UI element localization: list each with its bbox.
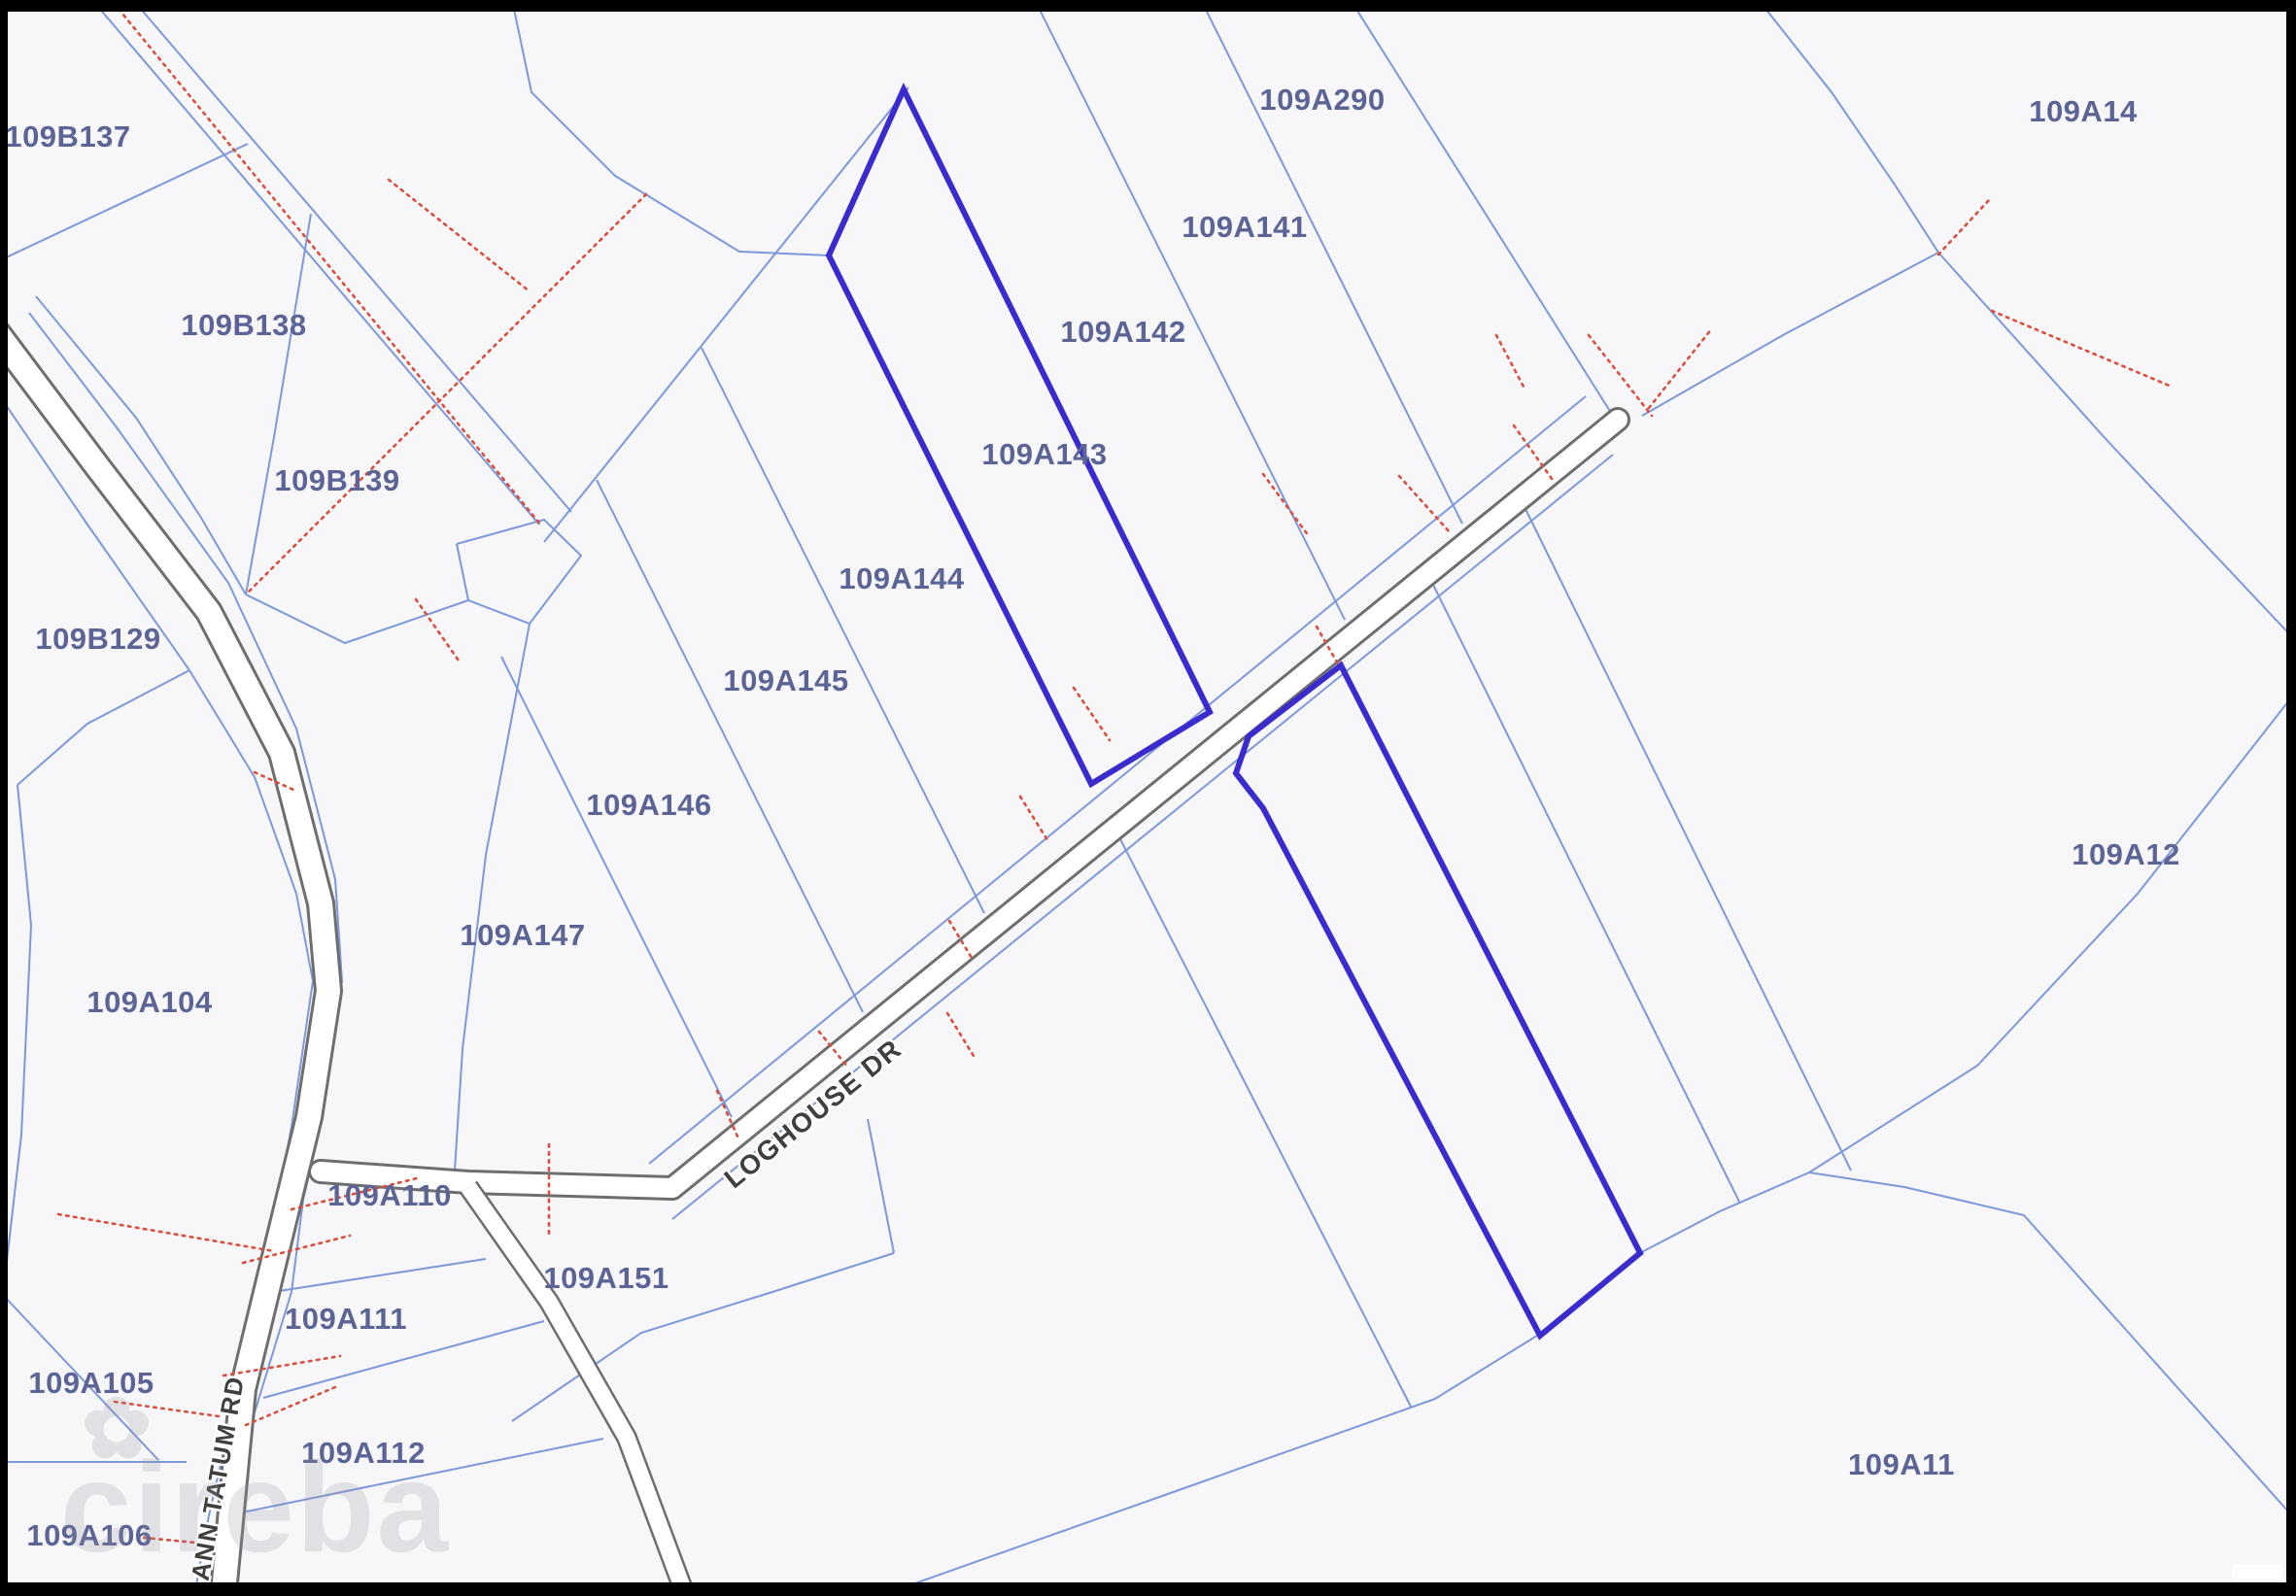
survey-dash-line [115,1402,219,1416]
parcel-boundary-line [1119,837,1411,1407]
survey-dash-line [1589,335,1652,416]
map-attribution-box [2232,1565,2282,1580]
parcel-label-109A151: 109A151 [543,1261,668,1295]
parcel-label-109A104: 109A104 [86,985,213,1019]
parcel-boundary-line [512,12,829,255]
parcel-label-109B137: 109B137 [8,119,131,153]
survey-dash-line [246,1387,335,1425]
parcel-boundary-line [455,624,530,1171]
parcel-boundary-line [8,144,248,260]
survey-dash-line [246,194,646,594]
survey-dash-line [1992,311,2172,387]
parcel-boundary-line [1642,253,1938,416]
parcel-boundary-line [457,520,581,624]
parcel-boundary-line [1525,509,1851,1171]
parcel-map-svg[interactable]: 109B137109B138109B139109B129109A290109A1… [8,12,2286,1582]
branch-road-surface[interactable] [468,1187,692,1582]
parcel-boundary-line [1809,692,2286,1172]
survey-dash-line [1020,797,1049,843]
survey-dash-line [1649,328,1712,408]
parcel-boundary-line [8,785,31,1295]
parcel-label-109A12: 109A12 [2072,837,2180,871]
survey-dash-line [389,180,530,291]
parcel-label-109A146: 109A146 [586,788,711,822]
parcel-label-109A147: 109A147 [460,918,585,952]
parcel-label-109B139: 109B139 [274,463,399,497]
parcel-label-109A144: 109A144 [839,561,965,595]
parcel-boundary-line [501,657,732,1117]
survey-dash-line [114,12,542,526]
parcel-label-109A141: 109A141 [1182,210,1307,244]
parcel-label-109B129: 109B129 [35,622,160,656]
parcel-boundary-line [868,1119,894,1253]
survey-dash-line [1074,688,1110,740]
map-window: 109B137109B138109B139109B129109A290109A1… [0,0,2296,1596]
parcel-label-109B138: 109B138 [181,308,306,342]
parcel-boundary-line [1759,12,1938,253]
parcel-boundary-line [544,87,908,542]
parcel-label-109A143: 109A143 [981,437,1107,471]
parcel-boundary-line [92,12,539,525]
survey-dash-line [1938,200,1989,255]
survey-dash-line [1496,335,1524,387]
survey-dash-line [1263,474,1309,536]
parcel-label-109A142: 109A142 [1060,315,1185,349]
survey-dash-line [58,1214,274,1251]
parcel-boundary-line [246,214,311,594]
parcel-label-109A106: 109A106 [26,1518,152,1552]
survey-dash-line [947,1013,974,1056]
parcel-label-109A11: 109A11 [1848,1447,1955,1481]
parcel-label-109A110: 109A110 [327,1178,452,1212]
parcel-label-109A290: 109A290 [1259,83,1385,117]
parcel-label-109A14: 109A14 [2029,94,2138,128]
parcel-label-109A112: 109A112 [301,1436,426,1470]
parcel-label-109A105: 109A105 [28,1366,154,1400]
parcel-boundary-line [1433,585,1739,1202]
parcel-boundary-line [246,594,468,643]
parcel-boundary-line [597,480,863,1012]
highlighted-parcel-south[interactable] [1236,665,1640,1336]
survey-dash-line [416,599,459,661]
parcel-label-109A145: 109A145 [723,663,848,697]
parcel-boundary-line [649,396,1586,1164]
cadastral-map[interactable]: 109B137109B138109B139109B129109A290109A1… [8,12,2286,1582]
parcel-boundary-line [17,670,189,785]
parcel-boundary-line [702,348,984,913]
parcel-label-109A111: 109A111 [285,1302,407,1336]
parcel-boundary-line [879,1172,2286,1582]
parcel-boundary-line [133,12,571,512]
parcel-boundary-line [1351,12,1613,416]
